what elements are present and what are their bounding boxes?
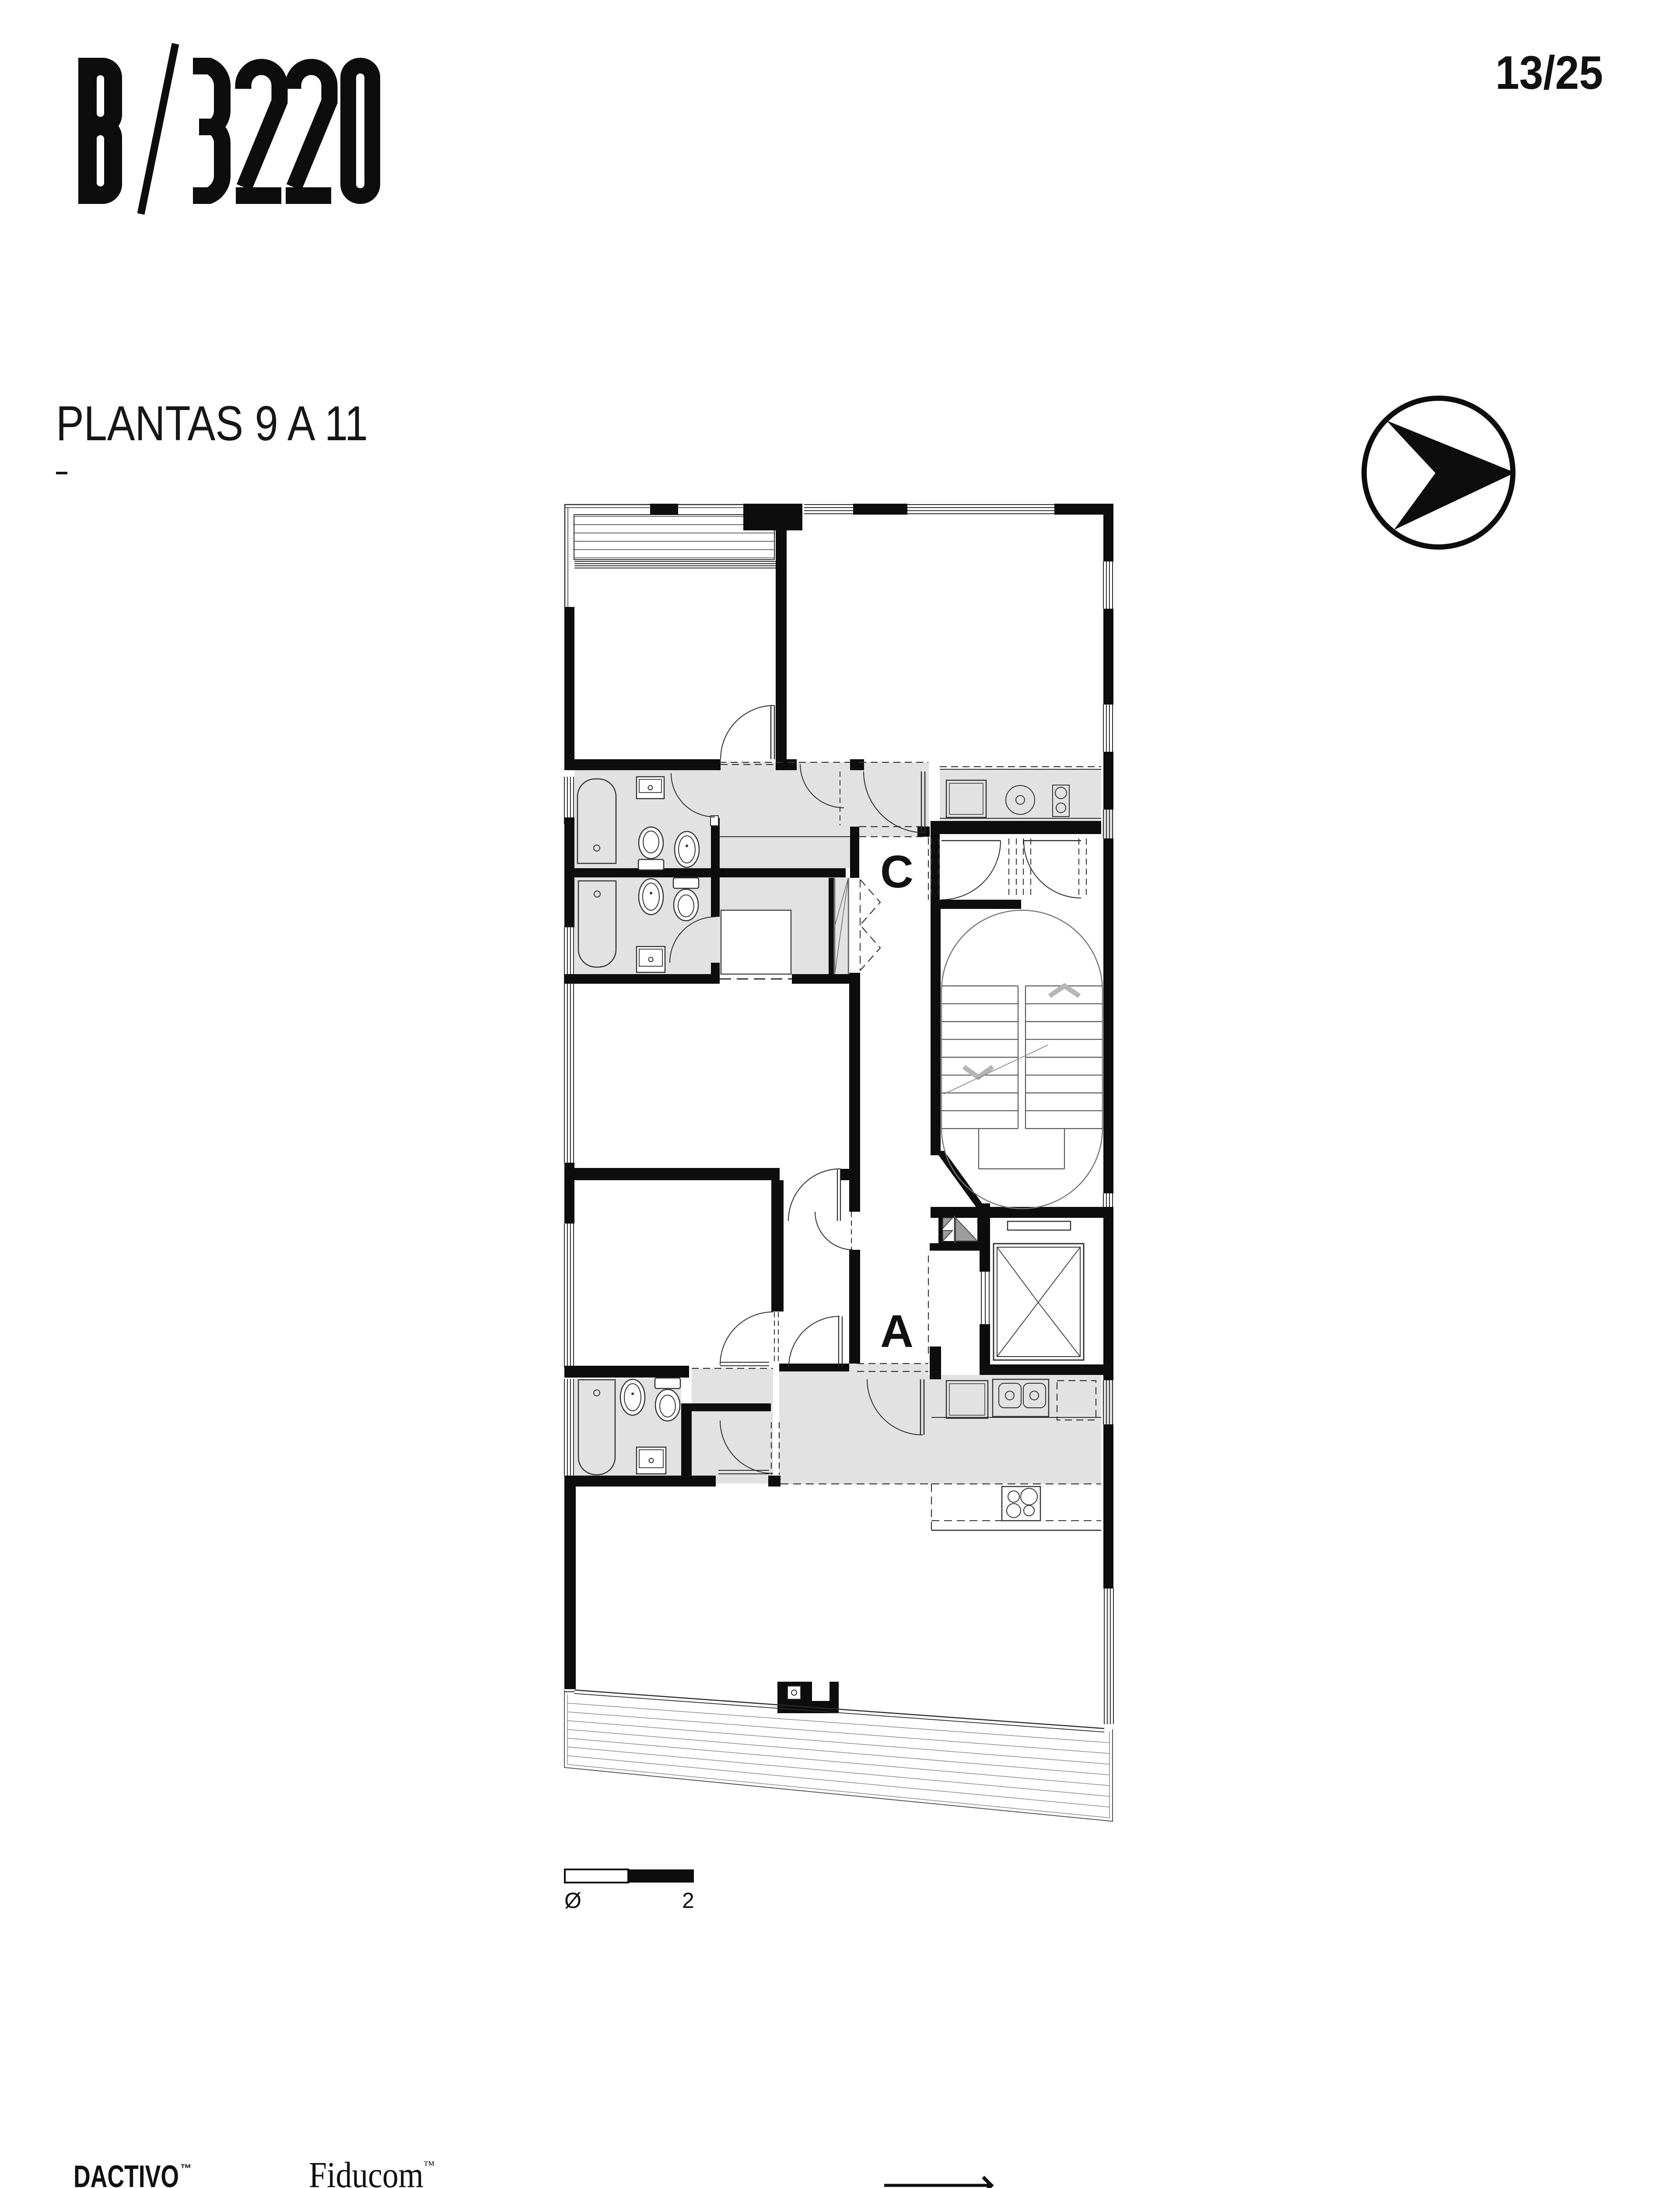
svg-text:Fiducom: Fiducom [309,2155,423,2188]
svg-text:A: A [880,1306,913,1357]
svg-text:2: 2 [682,1888,694,1913]
svg-text:™: ™ [180,2162,192,2175]
svg-text:13/25: 13/25 [1495,46,1603,99]
svg-text:™: ™ [423,2159,434,2171]
svg-text:Ø: Ø [564,1888,581,1913]
svg-text:DACTIVO: DACTIVO [73,2160,179,2188]
svg-text:PLANTAS 9 A 11: PLANTAS 9 A 11 [56,396,368,451]
svg-text:C: C [880,846,913,898]
